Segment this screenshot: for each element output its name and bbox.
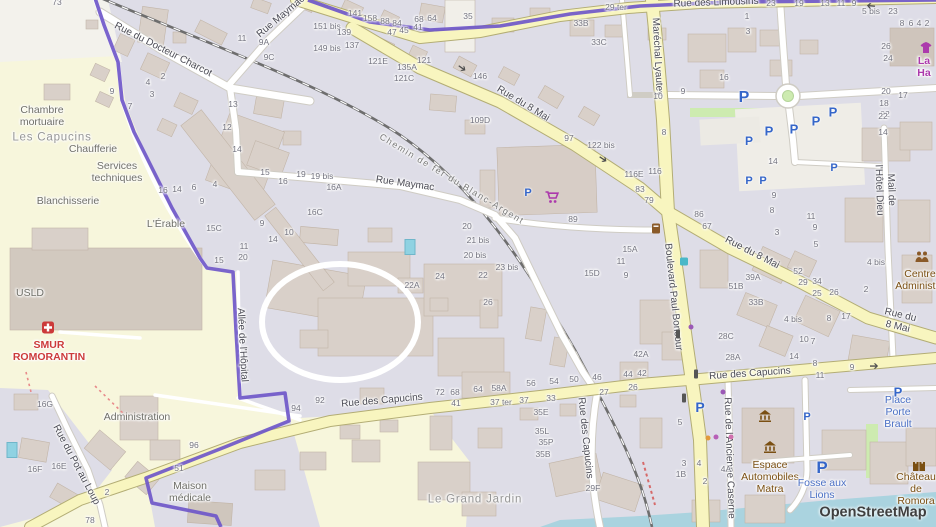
traffic-light-icon [694, 370, 698, 379]
house-number: 35E [533, 408, 548, 418]
poi-dot-icon [729, 435, 734, 440]
place-label: Centre Administra [895, 268, 936, 292]
house-number: 46 [592, 373, 601, 383]
house-number: 72 [435, 388, 444, 398]
house-number: 22A [404, 281, 419, 291]
house-number: 41 [413, 23, 422, 33]
house-number: 20 [238, 253, 247, 263]
house-number: 41 [451, 399, 460, 409]
oneway-arrow-icon: ➔ [866, 0, 876, 13]
place-label: Le Grand Jardin [428, 493, 522, 506]
parking-icon: P [745, 134, 753, 148]
house-number: 8 [827, 314, 832, 324]
house-number: 52 [793, 267, 802, 277]
house-number: 9 [260, 219, 265, 229]
recycling-icon [680, 253, 689, 271]
parking-icon: P [765, 124, 774, 139]
osm-attribution[interactable]: OpenStreetMap [819, 505, 926, 522]
community-icon [915, 249, 930, 267]
house-number: 11 [807, 212, 816, 222]
street-label: Rue des Capucins [341, 392, 423, 411]
parking-icon: P [524, 187, 531, 199]
house-number: 2 [161, 72, 166, 82]
house-number: 116 [648, 167, 662, 177]
house-number: 8 [662, 128, 667, 138]
house-number: 33B [573, 19, 588, 29]
house-number: 17 [898, 91, 907, 101]
house-number: 29 [798, 278, 807, 288]
house-number: 11 [238, 34, 247, 44]
house-number: 15 [214, 256, 223, 266]
poi-dot-icon [689, 325, 694, 330]
map-canvas[interactable]: Rue du Docteur CharcotRue MaymacRue Maym… [0, 0, 936, 527]
house-number: 26 [881, 42, 890, 52]
street-label: Rue des Capucins [709, 365, 791, 382]
house-number: 51 [174, 464, 183, 474]
house-number: 17 [841, 312, 850, 322]
house-number: 44 [623, 370, 632, 380]
house-number: 18 [879, 99, 888, 109]
street-label: Allée de l'Hôpital [234, 308, 249, 383]
house-number: 121E [368, 57, 388, 67]
place-label: Services techniques [92, 160, 143, 184]
street-label: Rue Maymac [255, 0, 308, 40]
oneway-arrow-icon: ➔ [596, 151, 611, 167]
house-number: 20 [462, 222, 471, 232]
house-number: 5 [814, 240, 819, 250]
house-number: 14 [768, 157, 777, 167]
oneway-arrow-icon: ➔ [869, 360, 878, 373]
house-number: 6 [192, 183, 197, 193]
house-number: 37 [519, 396, 528, 406]
house-number: 47 [387, 28, 396, 38]
house-number: 23 [888, 7, 897, 17]
house-number: 94 [291, 404, 300, 414]
emergency-icon [42, 321, 55, 339]
house-number: 34 [812, 277, 821, 287]
house-number: 3 [150, 90, 155, 100]
traffic-light-icon [682, 394, 686, 403]
place-label: Fosse aux Lions [798, 477, 846, 501]
house-number: 35 [463, 12, 472, 22]
museum-icon [758, 409, 772, 427]
house-number: 22 [878, 112, 887, 122]
house-number: 10 [284, 228, 293, 238]
house-number: 51B [728, 282, 743, 292]
house-number: 9 [681, 87, 686, 97]
house-number: 139 [337, 28, 351, 38]
house-number: 24 [435, 272, 444, 282]
house-number: 12 [222, 123, 231, 133]
place-label: L'Érable [147, 218, 185, 230]
parking-icon: P [695, 399, 704, 415]
house-number: 83 [635, 185, 644, 195]
house-number: 88 [380, 17, 389, 27]
parking-icon: P [745, 175, 752, 187]
street-label: Rue du 8 Mai [723, 234, 781, 271]
house-number: 50 [569, 375, 578, 385]
house-number: 7 [811, 337, 816, 347]
house-number: 149 bis [313, 44, 340, 54]
house-number: 89 [568, 215, 577, 225]
oneway-arrow-icon: ➔ [454, 60, 469, 76]
house-number: 24 [883, 54, 892, 64]
house-number: 26 [483, 298, 492, 308]
poi-dot-icon [706, 436, 711, 441]
clothes-shop-icon [920, 41, 933, 59]
house-number: 29F [586, 484, 601, 494]
house-number: 67 [702, 222, 711, 232]
house-number: 16A [326, 183, 341, 193]
poi-dot-icon [721, 390, 726, 395]
house-number: 158 [363, 14, 377, 24]
house-number: 4 [917, 19, 922, 29]
house-number: 9 [200, 197, 205, 207]
house-number: 9 [813, 223, 818, 233]
house-number: 9C [264, 53, 275, 63]
street-label: Rue du 8 Mai [495, 84, 552, 124]
house-number: 14 [172, 185, 181, 195]
house-number: 14 [268, 235, 277, 245]
museum-icon [763, 440, 777, 458]
place-label: Administration [104, 411, 171, 423]
house-number: 7 [128, 102, 133, 112]
house-number: 11 [816, 371, 825, 381]
house-number: 13 [228, 100, 237, 110]
house-number: 19 bis [311, 172, 334, 182]
house-number: 25 [812, 289, 821, 299]
place-label: Blanchisserie [37, 195, 99, 207]
house-number: 86 [694, 210, 703, 220]
house-number: 35B [535, 450, 550, 460]
house-number: 23 bis [496, 263, 519, 273]
house-number: 16 [278, 177, 287, 187]
house-number: 16G [37, 400, 53, 410]
place-label: Maison médicale [169, 480, 211, 504]
street-label: Rue des Capucins [575, 397, 595, 479]
parking-icon: P [812, 114, 821, 129]
house-number: 135A [397, 63, 417, 73]
map-labels-layer: Rue du Docteur CharcotRue MaymacRue Maym… [0, 0, 936, 527]
parking-icon: P [829, 105, 838, 120]
supermarket-icon [545, 191, 560, 209]
street-label: Rue Maymac [375, 174, 435, 194]
poi-dot-icon [714, 435, 719, 440]
house-number: 6 [909, 19, 914, 29]
parking-icon: P [790, 122, 799, 137]
house-number: 11 [240, 242, 249, 252]
house-number: 1B [676, 470, 686, 480]
house-number: 33C [591, 38, 607, 48]
house-number: 97 [564, 134, 573, 144]
house-number: 16 [158, 186, 167, 196]
house-number: 9 [624, 271, 629, 281]
place-label: Espace Automobiles Matra [741, 459, 799, 495]
parking-icon: P [739, 89, 750, 107]
house-number: 23 [766, 0, 775, 9]
place-label: Château de Romora [896, 471, 936, 507]
house-number: 122 bis [587, 141, 614, 151]
house-number: 10 [799, 335, 808, 345]
house-number: 2 [925, 19, 930, 29]
house-number: 21 bis [467, 236, 490, 246]
place-label: SMUR ROMORANTIN [13, 339, 85, 363]
place-label: USLD [16, 287, 44, 299]
house-number: 14 [878, 128, 887, 138]
pool-icon [7, 442, 18, 458]
house-number: 73 [52, 0, 61, 8]
parking-icon: P [803, 411, 810, 423]
house-number: 27 [599, 388, 608, 398]
pool-icon [405, 239, 416, 255]
street-label: Rue des Limousins [673, 0, 758, 10]
house-number: 116E [624, 170, 643, 180]
house-number: 26 [628, 383, 637, 393]
house-number: 3 [775, 228, 780, 238]
house-number: 14 [789, 352, 798, 362]
house-number: 137 [345, 41, 359, 51]
traffic-light-icon [676, 330, 680, 339]
house-number: 146 [473, 72, 487, 82]
house-number: 92 [315, 396, 324, 406]
house-number: 33B [748, 298, 763, 308]
house-number: 141 [348, 9, 362, 19]
street-label: Rue du 8 Mai [878, 306, 919, 337]
house-number: 8 [770, 206, 775, 216]
house-number: 15 [260, 168, 269, 178]
house-number: 64 [473, 385, 482, 395]
house-number: 78 [85, 516, 94, 526]
house-number: 35P [538, 438, 553, 448]
house-number: 1 [745, 12, 750, 22]
house-number: 39A [745, 273, 760, 283]
house-number: 4 bis [867, 258, 885, 268]
house-number: 5 [678, 418, 683, 428]
house-number: 37 ter [490, 398, 512, 408]
house-number: 9 [852, 0, 857, 9]
house-number: 16E [51, 462, 66, 472]
house-number: 9 [110, 87, 115, 97]
house-number: 9 [772, 191, 777, 201]
house-number: 42A [633, 350, 648, 360]
house-number: 8 [813, 359, 818, 369]
street-label: Mail de l'Hôtel Dieu [873, 164, 898, 216]
parking-icon: P [894, 385, 903, 400]
house-number: 42 [637, 369, 646, 379]
house-number: 96 [189, 441, 198, 451]
house-number: 121 [417, 56, 431, 66]
house-number: 16F [28, 465, 43, 475]
house-number: 35L [535, 427, 549, 437]
house-number: 10 [653, 92, 662, 102]
house-number: 4A [721, 465, 731, 475]
house-number: 56 [526, 379, 535, 389]
house-number: 121C [394, 74, 414, 84]
house-number: 20 bis [464, 251, 487, 261]
house-number: 29 ter [605, 3, 627, 13]
house-number: 16 [719, 73, 728, 83]
house-number: 19 [296, 170, 305, 180]
street-label: Rue de l'Ancienne Caserne [721, 397, 737, 519]
house-number: 3 [682, 459, 687, 469]
castle-icon [912, 458, 926, 476]
house-number: 26 [829, 288, 838, 298]
house-number: 4 [697, 459, 702, 469]
house-number: 28A [725, 353, 740, 363]
house-number: 9A [259, 38, 269, 48]
parking-icon: P [816, 458, 827, 478]
house-number: 11 [617, 257, 626, 267]
house-number: 45 [399, 26, 408, 36]
house-number: 2 [864, 285, 869, 295]
house-number: 54 [549, 377, 558, 387]
house-number: 11 [837, 0, 846, 9]
postbox-icon [652, 221, 661, 239]
house-number: 109D [470, 116, 490, 126]
house-number: 8 [900, 19, 905, 29]
house-number: 16C [307, 208, 323, 218]
place-label: Chaufferie [69, 143, 117, 155]
house-number: 14 [232, 145, 241, 155]
house-number: 22 [478, 271, 487, 281]
house-number: 4 bis [784, 315, 802, 325]
place-label: Chambre mortuaire [20, 104, 64, 128]
house-number: 64 [427, 14, 436, 24]
house-number: 4 [146, 78, 151, 88]
house-number: 33 [546, 394, 555, 404]
house-number: 4 [213, 180, 218, 190]
parking-icon: P [830, 162, 837, 174]
street-label: Maréchal Lyautey [649, 17, 665, 96]
house-number: 2 [105, 488, 110, 498]
house-number: 28C [718, 332, 734, 342]
house-number: 15C [206, 224, 222, 234]
parking-icon: P [759, 175, 766, 187]
house-number: 13 [820, 0, 829, 9]
house-number: 68 [450, 388, 459, 398]
house-number: 3 [746, 27, 751, 37]
house-number: 58A [491, 384, 506, 394]
house-number: 20 [881, 87, 890, 97]
house-number: 2 [703, 477, 708, 487]
house-number: 79 [644, 196, 653, 206]
house-number: 19 [794, 0, 803, 9]
house-number: 9 [850, 363, 855, 373]
house-number: 15D [584, 269, 600, 279]
house-number: 15A [622, 245, 637, 255]
